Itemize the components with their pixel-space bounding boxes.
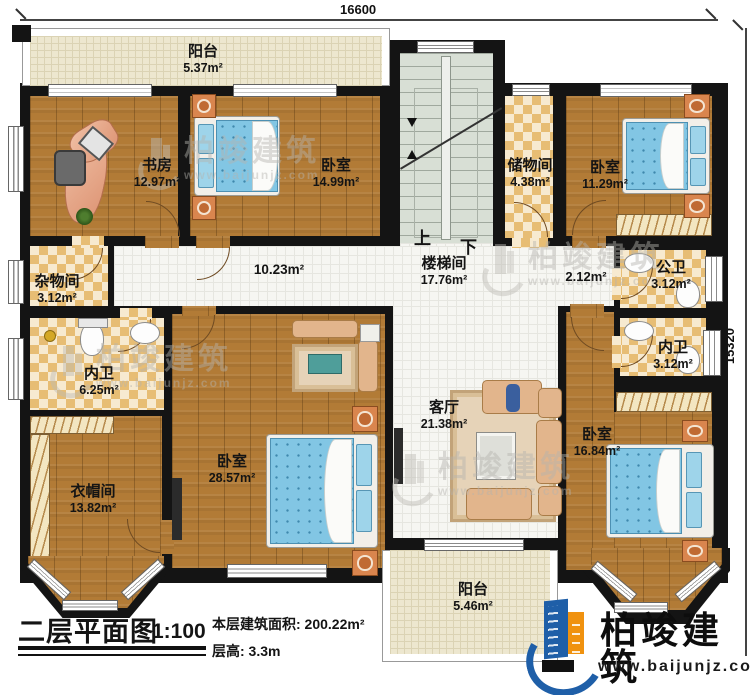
room-label-storage: 储物间 4.38m² (507, 158, 552, 189)
door-study (145, 236, 179, 248)
pillow (686, 492, 702, 528)
sofa (466, 488, 532, 520)
window-ensuite-left (8, 338, 24, 400)
window-public-bath (705, 256, 723, 302)
door-bedroom-top-right (572, 236, 606, 248)
bed-sheet (324, 439, 352, 543)
logo-building-orange (568, 612, 584, 654)
room-label-public-bath: 公卫 3.12m² (651, 260, 691, 291)
armchair (538, 388, 562, 418)
toilet-tank (78, 318, 108, 328)
tv (394, 428, 403, 484)
room-label-stairwell: 楼梯间 17.76m² (421, 256, 468, 287)
door-storage (512, 238, 548, 248)
room-label-study: 书房 12.97m² (134, 158, 181, 189)
nightstand (352, 550, 378, 576)
title-underline (18, 646, 206, 650)
window-study (48, 84, 152, 97)
logo-base (542, 660, 574, 672)
wardrobe-strip (30, 416, 114, 434)
pillow (356, 490, 372, 532)
nightstand (682, 420, 708, 442)
window-bedroom-master (227, 564, 327, 578)
nightstand (684, 194, 710, 218)
floor-plan-canvas: 16600 15320 (0, 0, 750, 695)
nightstand (352, 406, 378, 432)
room-label-ensuite-left: 内卫 6.25m² (79, 366, 119, 397)
pillow (690, 126, 706, 154)
nightstand (682, 540, 708, 562)
corridor-floor (114, 246, 614, 306)
window-study-left (8, 126, 24, 192)
bed-sheet (656, 449, 680, 533)
sink (624, 253, 654, 273)
room-label-ensuite-right: 内卫 3.12m² (653, 340, 693, 371)
wardrobe-strip (616, 392, 712, 412)
bed-sheet (252, 121, 278, 191)
sofa (358, 340, 378, 392)
window-bedroom-top-right (600, 84, 692, 97)
nightstand (192, 94, 216, 118)
sink (130, 322, 160, 344)
pillow (356, 444, 372, 486)
sofa (292, 320, 358, 338)
pillow (690, 158, 706, 186)
room-label-cloakroom: 衣帽间 13.82m² (70, 484, 117, 515)
dimension-top-line (20, 19, 718, 21)
page-title: 二层平面图 (18, 610, 158, 649)
floor-drain (44, 330, 56, 342)
door-vestibule (570, 304, 604, 318)
room-label-bedroom-bottom-right: 卧室 16.84m² (574, 427, 621, 458)
room-label-corridor: 10.23m² (254, 262, 304, 277)
stair-arrow-up-icon (407, 150, 417, 159)
plant (76, 208, 93, 225)
window-ensuite-right (703, 330, 721, 376)
brand-website: www.baijunjz.com (598, 658, 750, 676)
sliding-door-balcony (424, 539, 524, 551)
sink (624, 321, 654, 341)
room-label-balcony-bottom: 阳台 5.46m² (453, 582, 493, 613)
dimension-tick (15, 8, 26, 19)
nightstand (684, 94, 710, 118)
dimension-top-label: 16600 (340, 2, 376, 17)
side-table (360, 324, 380, 342)
room-label-bedroom-master: 卧室 28.57m² (209, 454, 256, 485)
pillow (686, 452, 702, 488)
room-label-bedroom-top-left: 卧室 14.99m² (313, 158, 360, 189)
armchair (538, 486, 562, 516)
coffee-table (308, 354, 342, 374)
stair-stringer (441, 56, 451, 240)
bed-sheet (660, 123, 684, 189)
dimension-tick (732, 19, 743, 30)
window-stairwell (417, 41, 474, 53)
tv (172, 478, 182, 540)
floor-height-label: 层高: 3.3m (212, 641, 280, 661)
title-underline (18, 654, 206, 656)
window-bedroom-top-left (233, 84, 337, 97)
person-figure (506, 384, 520, 412)
dimension-right-line (745, 28, 747, 656)
room-label-corridor-right: 2.12m² (565, 270, 606, 285)
stair-up-label: 上 (414, 224, 431, 249)
wall-corner-block (12, 25, 31, 42)
sofa (536, 420, 562, 484)
office-chair (54, 150, 86, 186)
room-label-utility: 杂物间 3.12m² (34, 274, 79, 305)
window-utility (8, 260, 24, 304)
pillow (198, 124, 214, 154)
room-label-bedroom-top-right: 卧室 11.29m² (582, 160, 628, 191)
wardrobe-strip (30, 434, 50, 564)
scale-label: 1:100 (152, 620, 206, 644)
pillow (198, 158, 214, 188)
room-label-balcony-top: 阳台 5.37m² (183, 44, 223, 75)
stair-arrow-down-icon (407, 118, 417, 127)
nightstand (192, 196, 216, 220)
room-label-living-room: 客厅 21.38m² (421, 400, 468, 431)
dimension-tick (705, 8, 716, 19)
logo-building-blue (544, 599, 568, 660)
door-utility (72, 236, 104, 248)
floor-area-label: 本层建筑面积: 200.22m² (212, 614, 364, 634)
brand-logo-icon (518, 598, 600, 690)
coffee-table (476, 432, 516, 480)
window-storage (512, 84, 550, 96)
